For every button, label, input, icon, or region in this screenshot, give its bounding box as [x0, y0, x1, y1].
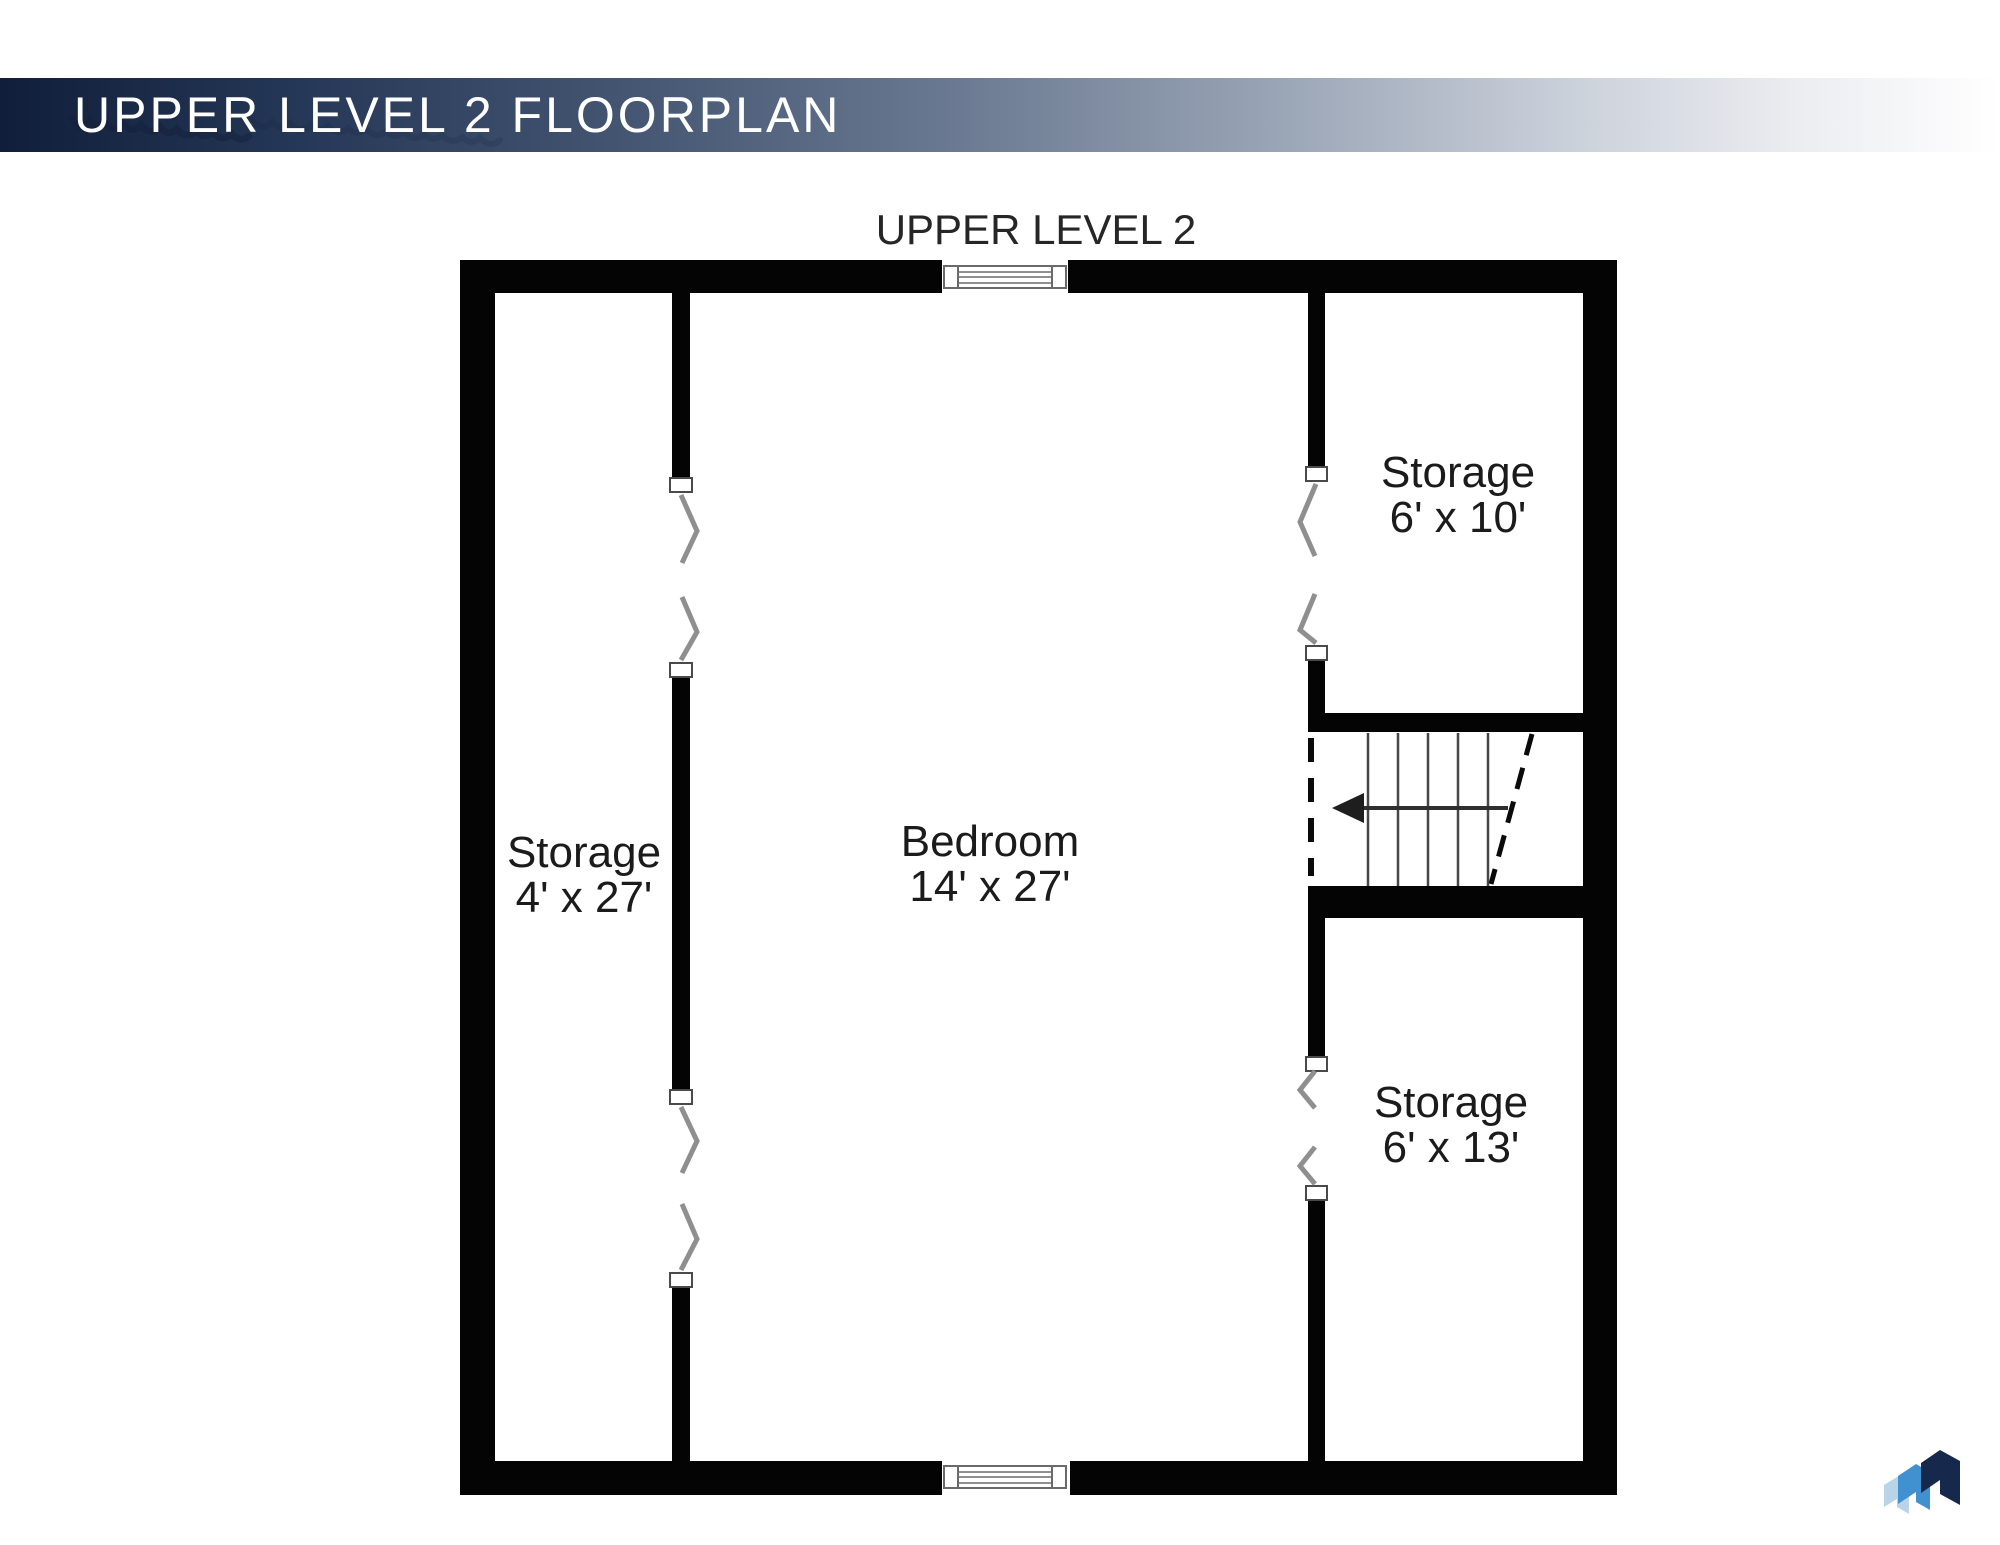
bifold-door-left-lower	[670, 1090, 697, 1287]
wall-top-right-segment	[1068, 260, 1617, 293]
room-name: Storage	[1381, 450, 1535, 495]
room-label-storage-top-right: Storage 6' x 10'	[1381, 450, 1535, 540]
door-hinge	[670, 478, 692, 492]
door-hinge	[1306, 467, 1327, 481]
door-hinge	[1306, 1186, 1327, 1200]
wall-storage-left-upper	[672, 293, 690, 478]
wall-stair-bottom	[1308, 886, 1583, 918]
bifold-door-left-upper	[670, 478, 697, 677]
window-end-cap	[944, 1466, 958, 1488]
bifold-door-right-upper	[1300, 467, 1327, 660]
door-leaf	[1300, 594, 1316, 643]
wall-stair-top	[1308, 713, 1583, 732]
wall-right-rooms-lower	[1308, 1200, 1325, 1461]
door-leaf	[681, 1107, 697, 1173]
window-top	[944, 266, 1066, 288]
wall-right-rooms-stair	[1308, 918, 1325, 1057]
window-end-cap	[1052, 1466, 1066, 1488]
brand-logo	[1884, 1450, 1960, 1514]
room-label-bedroom: Bedroom 14' x 27'	[901, 819, 1080, 909]
room-label-storage-left: Storage 4' x 27'	[507, 830, 661, 920]
door-leaf	[681, 597, 697, 660]
door-hinge	[1306, 1057, 1327, 1071]
logo-chevron-dark	[1921, 1450, 1940, 1493]
door-leaf	[681, 1204, 697, 1270]
door-hinge	[670, 1090, 692, 1104]
door-leaf	[1300, 1071, 1315, 1108]
door-leaf	[1300, 1147, 1315, 1184]
door-hinge	[670, 663, 692, 677]
logo-chevron-light	[1884, 1477, 1897, 1507]
arrowhead-icon	[1332, 793, 1364, 823]
plan-level-label: UPPER LEVEL 2	[876, 206, 1197, 254]
wall-top-left-segment	[460, 260, 942, 293]
room-dimensions: 6' x 10'	[1381, 495, 1535, 540]
window-bottom	[944, 1466, 1066, 1488]
window-end-cap	[944, 266, 958, 288]
wall-bottom-right-segment	[1070, 1461, 1617, 1495]
room-label-storage-bottom-right: Storage 6' x 13'	[1374, 1080, 1528, 1170]
wall-right-rooms-upper	[1308, 293, 1325, 467]
logo-chevron-dark	[1940, 1450, 1960, 1505]
wall-right	[1583, 260, 1617, 1495]
bifold-door-right-lower	[1300, 1057, 1327, 1200]
logo-chevron-mid	[1898, 1464, 1916, 1504]
room-name: Bedroom	[901, 819, 1080, 864]
door-leaf	[1300, 484, 1316, 556]
wall-storage-left-middle	[672, 677, 690, 1090]
window-end-cap	[1052, 266, 1066, 288]
door-leaf	[681, 495, 697, 563]
room-dimensions: 4' x 27'	[507, 875, 661, 920]
room-dimensions: 14' x 27'	[901, 864, 1080, 909]
room-name: Storage	[507, 830, 661, 875]
wall-left	[460, 260, 495, 1495]
wall-bottom-left-segment	[460, 1461, 942, 1495]
staircase	[1311, 733, 1532, 886]
page: UPPER LEVEL 2 FLOORPLAN	[0, 0, 2000, 1545]
wall-storage-left-lower	[672, 1287, 690, 1461]
door-hinge	[1306, 646, 1327, 660]
door-hinge	[670, 1273, 692, 1287]
room-name: Storage	[1374, 1080, 1528, 1125]
stair-direction-arrow	[1332, 793, 1508, 823]
room-dimensions: 6' x 13'	[1374, 1125, 1528, 1170]
